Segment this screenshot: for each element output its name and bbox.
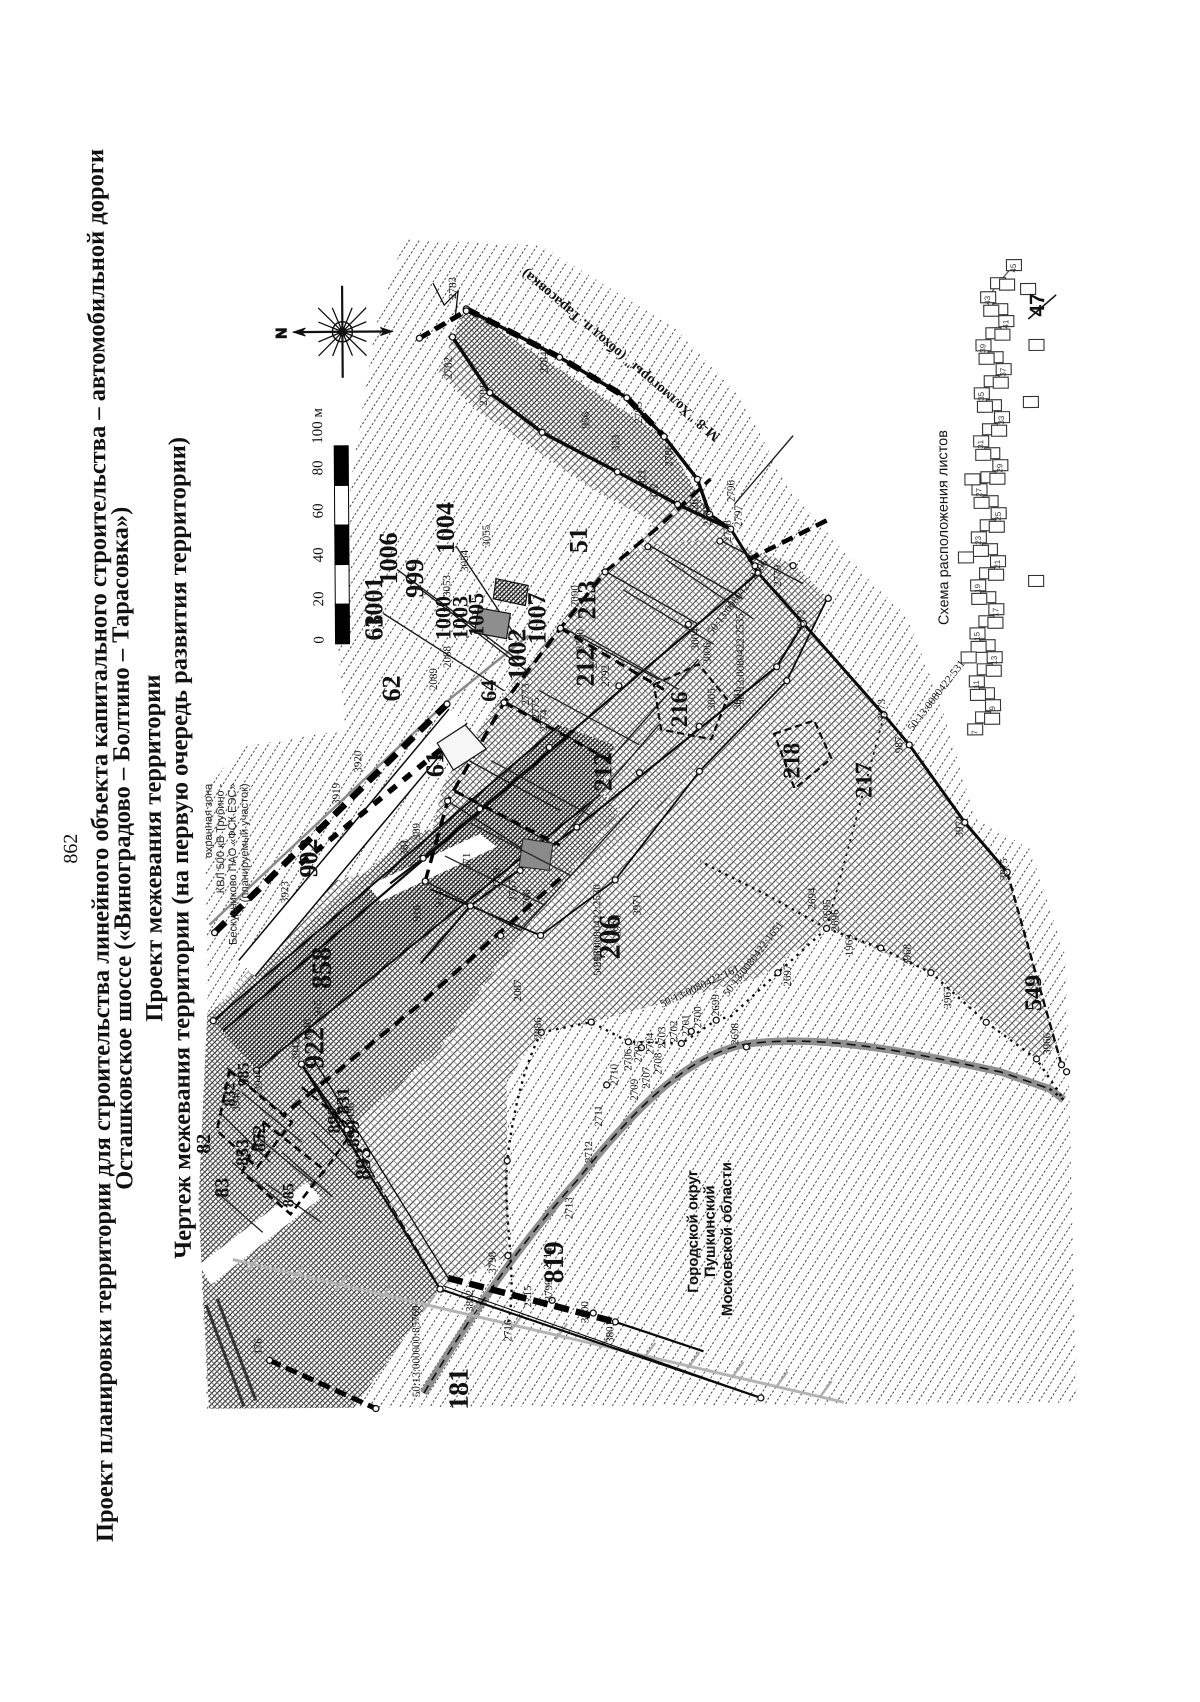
svg-text:2786: 2786 bbox=[663, 444, 675, 467]
svg-text:27: 27 bbox=[974, 487, 983, 497]
svg-text:3973: 3973 bbox=[876, 698, 888, 721]
svg-text:2694: 2694 bbox=[806, 887, 818, 910]
svg-text:2697: 2697 bbox=[782, 964, 794, 987]
svg-text:2708: 2708 bbox=[652, 1052, 664, 1075]
svg-text:2709: 2709 bbox=[629, 1078, 641, 1101]
svg-text:2712: 2712 bbox=[583, 1141, 595, 1163]
svg-text:893: 893 bbox=[350, 1147, 375, 1180]
svg-text:61: 61 bbox=[420, 751, 449, 777]
svg-text:2089: 2089 bbox=[428, 668, 440, 691]
svg-text:3006: 3006 bbox=[702, 642, 714, 665]
svg-text:2790: 2790 bbox=[574, 629, 586, 652]
svg-text:45: 45 bbox=[1009, 263, 1018, 273]
svg-text:2715: 2715 bbox=[522, 1285, 534, 1308]
svg-text:2088: 2088 bbox=[442, 646, 454, 669]
svg-text:2791: 2791 bbox=[588, 647, 600, 669]
svg-text:2784: 2784 bbox=[539, 351, 551, 374]
svg-text:33: 33 bbox=[997, 415, 1006, 425]
svg-text:3974: 3974 bbox=[954, 815, 966, 838]
svg-text:2711: 2711 bbox=[593, 1105, 605, 1127]
svg-text:Пушкинский: Пушкинский bbox=[701, 1185, 719, 1277]
svg-text:80: 80 bbox=[310, 460, 326, 475]
svg-text:2703: 2703 bbox=[656, 1026, 668, 1049]
svg-text:37: 37 bbox=[999, 367, 1008, 377]
svg-text:3800: 3800 bbox=[579, 1301, 591, 1324]
svg-text:50:13:0080422:2530: 50:13:0080422:2530 bbox=[591, 884, 604, 976]
svg-text:322: 322 bbox=[648, 483, 660, 500]
svg-text:1007: 1007 bbox=[522, 592, 551, 644]
svg-text:41: 41 bbox=[1001, 319, 1010, 329]
svg-text:176: 176 bbox=[252, 1338, 264, 1355]
svg-text:2782: 2782 bbox=[443, 357, 455, 379]
svg-text:83: 83 bbox=[211, 1178, 233, 1198]
svg-text:2700: 2700 bbox=[692, 1006, 704, 1029]
svg-text:2716: 2716 bbox=[502, 1319, 514, 1342]
svg-text:2707: 2707 bbox=[641, 1066, 653, 1089]
svg-text:2086: 2086 bbox=[532, 1017, 544, 1040]
svg-text:39: 39 bbox=[978, 343, 987, 353]
svg-text:Проект межевания территории: Проект межевания территории bbox=[139, 674, 168, 1021]
svg-text:3919: 3919 bbox=[331, 782, 343, 805]
svg-text:2698: 2698 bbox=[729, 1023, 741, 1046]
svg-text:60: 60 bbox=[311, 503, 327, 518]
svg-text:20: 20 bbox=[311, 591, 327, 606]
svg-text:858: 858 bbox=[307, 947, 338, 989]
svg-text:2704: 2704 bbox=[644, 1032, 656, 1055]
svg-text:N: N bbox=[273, 328, 290, 339]
svg-text:862: 862 bbox=[60, 834, 82, 864]
svg-text:Чертеж межевания территории (н: Чертеж межевания территории (на первую о… bbox=[164, 437, 197, 1259]
svg-text:3053: 3053 bbox=[441, 575, 453, 598]
svg-text:21: 21 bbox=[993, 559, 1002, 569]
svg-text:50:13:000000:85769: 50:13:000000:85769 bbox=[410, 1305, 423, 1397]
svg-text:323: 323 bbox=[610, 434, 622, 451]
svg-text:(планируемый участок): (планируемый участок) bbox=[239, 783, 252, 902]
svg-text:2785: 2785 bbox=[633, 401, 645, 424]
svg-text:902: 902 bbox=[294, 838, 323, 877]
svg-text:3054: 3054 bbox=[459, 549, 471, 572]
svg-text:23: 23 bbox=[974, 535, 983, 545]
svg-text:2769: 2769 bbox=[491, 867, 503, 890]
svg-text:2696: 2696 bbox=[829, 909, 841, 932]
svg-text:3968: 3968 bbox=[902, 943, 914, 966]
svg-text:915: 915 bbox=[312, 999, 324, 1016]
svg-text:3967: 3967 bbox=[942, 986, 954, 1009]
svg-text:29: 29 bbox=[995, 463, 1004, 473]
svg-text:82: 82 bbox=[193, 1134, 215, 1154]
svg-text:3946: 3946 bbox=[231, 1089, 243, 1112]
svg-text:35: 35 bbox=[977, 391, 986, 401]
svg-text:63: 63 bbox=[359, 614, 388, 640]
svg-text:1005: 1005 bbox=[463, 593, 488, 637]
svg-text:64: 64 bbox=[476, 680, 501, 702]
svg-text:50:13:0080422:2535: 50:13:0080422:2535 bbox=[734, 613, 747, 705]
svg-text:321: 321 bbox=[636, 469, 648, 486]
svg-text:216: 216 bbox=[667, 691, 693, 727]
svg-text:2792: 2792 bbox=[600, 665, 612, 687]
svg-text:381: 381 bbox=[399, 839, 411, 856]
svg-text:19: 19 bbox=[973, 583, 982, 593]
svg-text:2701: 2701 bbox=[680, 1014, 692, 1036]
svg-text:987: 987 bbox=[893, 736, 905, 753]
svg-text:852: 852 bbox=[249, 1125, 269, 1152]
svg-text:43: 43 bbox=[983, 295, 992, 305]
svg-text:2706: 2706 bbox=[622, 1048, 634, 1071]
svg-text:КВЛ 500 кВ Трубино -: КВЛ 500 кВ Трубино - bbox=[215, 783, 228, 893]
svg-text:3799: 3799 bbox=[543, 1279, 555, 1302]
svg-text:916: 916 bbox=[411, 904, 423, 921]
svg-text:17: 17 bbox=[991, 607, 1000, 617]
svg-text:Бескудниково ПАО «ФСК ЕЭС»: Бескудниково ПАО «ФСК ЕЭС» bbox=[227, 784, 240, 945]
svg-text:212: 212 bbox=[588, 752, 617, 791]
svg-text:7: 7 bbox=[970, 730, 979, 735]
svg-text:217: 217 bbox=[851, 762, 877, 798]
svg-text:999: 999 bbox=[400, 559, 429, 598]
svg-text:3920: 3920 bbox=[352, 750, 364, 773]
svg-text:3975: 3975 bbox=[998, 858, 1010, 881]
svg-text:13: 13 bbox=[990, 655, 999, 665]
svg-text:218: 218 bbox=[779, 743, 805, 779]
svg-text:985: 985 bbox=[235, 1062, 252, 1086]
svg-text:11: 11 bbox=[972, 680, 981, 689]
svg-text:3940: 3940 bbox=[302, 1018, 314, 1041]
svg-text:Городской округ: Городской округ bbox=[684, 1170, 702, 1293]
svg-text:3004: 3004 bbox=[689, 628, 701, 651]
svg-text:2797: 2797 bbox=[733, 504, 745, 527]
svg-text:62: 62 bbox=[377, 675, 406, 701]
svg-text:914: 914 bbox=[433, 890, 445, 907]
svg-text:2710: 2710 bbox=[609, 1063, 621, 1086]
svg-text:3005: 3005 bbox=[706, 688, 718, 711]
svg-text:1004: 1004 bbox=[431, 502, 460, 554]
svg-text:Осташковское шоссе («Виноградо: Осташковское шоссе («Виноградово – Болти… bbox=[107, 507, 139, 1190]
svg-text:100 м: 100 м bbox=[310, 408, 326, 444]
svg-text:2699: 2699 bbox=[710, 994, 722, 1017]
svg-text:40: 40 bbox=[311, 547, 327, 562]
svg-text:25: 25 bbox=[994, 511, 1003, 521]
svg-text:Московской области: Московской области bbox=[718, 1162, 736, 1316]
svg-text:0: 0 bbox=[312, 636, 328, 644]
svg-text:3802: 3802 bbox=[464, 1290, 476, 1312]
svg-text:3970: 3970 bbox=[611, 914, 623, 937]
svg-text:2778: 2778 bbox=[722, 520, 734, 543]
svg-text:3923: 3923 bbox=[279, 881, 291, 904]
svg-text:9: 9 bbox=[988, 705, 997, 710]
svg-text:охранная зона: охранная зона bbox=[203, 783, 216, 858]
svg-text:2702: 2702 bbox=[668, 1020, 680, 1042]
svg-text:892: 892 bbox=[324, 1106, 344, 1133]
svg-text:2496: 2496 bbox=[345, 1102, 357, 1125]
svg-text:31: 31 bbox=[976, 439, 985, 449]
svg-text:Схема расположения листов: Схема расположения листов bbox=[935, 430, 952, 625]
svg-text:2090: 2090 bbox=[569, 585, 581, 608]
svg-text:956: 956 bbox=[580, 411, 592, 428]
svg-text:2779: 2779 bbox=[772, 564, 784, 587]
svg-text:389: 389 bbox=[411, 822, 423, 839]
svg-text:2714: 2714 bbox=[542, 1247, 554, 1270]
svg-text:326: 326 bbox=[689, 499, 701, 516]
svg-text:51: 51 bbox=[564, 527, 593, 553]
svg-text:549: 549 bbox=[1021, 975, 1047, 1011]
svg-text:3055: 3055 bbox=[481, 524, 493, 547]
svg-text:1969: 1969 bbox=[844, 934, 856, 957]
svg-text:885: 885 bbox=[280, 1183, 297, 1207]
svg-text:2774: 2774 bbox=[538, 709, 550, 732]
svg-text:2713: 2713 bbox=[563, 1197, 575, 1220]
svg-text:3972: 3972 bbox=[795, 610, 807, 632]
svg-text:15: 15 bbox=[972, 631, 981, 641]
svg-text:2787: 2787 bbox=[702, 504, 714, 527]
svg-text:3971: 3971 bbox=[631, 894, 643, 916]
svg-text:47: 47 bbox=[1026, 293, 1049, 317]
svg-text:2781: 2781 bbox=[478, 384, 490, 406]
svg-text:3944: 3944 bbox=[253, 1069, 265, 1092]
svg-text:2796: 2796 bbox=[725, 480, 737, 503]
svg-text:3801: 3801 bbox=[604, 1321, 616, 1343]
svg-text:3966: 3966 bbox=[1041, 1032, 1053, 1055]
svg-text:2783: 2783 bbox=[447, 276, 459, 299]
svg-text:2766: 2766 bbox=[521, 889, 533, 912]
svg-text:2087: 2087 bbox=[512, 979, 524, 1002]
svg-text:3942: 3942 bbox=[290, 1039, 302, 1061]
svg-text:2767: 2767 bbox=[507, 879, 519, 902]
svg-text:3798: 3798 bbox=[487, 1251, 499, 1274]
svg-text:371: 371 bbox=[461, 853, 473, 870]
svg-text:181: 181 bbox=[444, 1368, 475, 1410]
